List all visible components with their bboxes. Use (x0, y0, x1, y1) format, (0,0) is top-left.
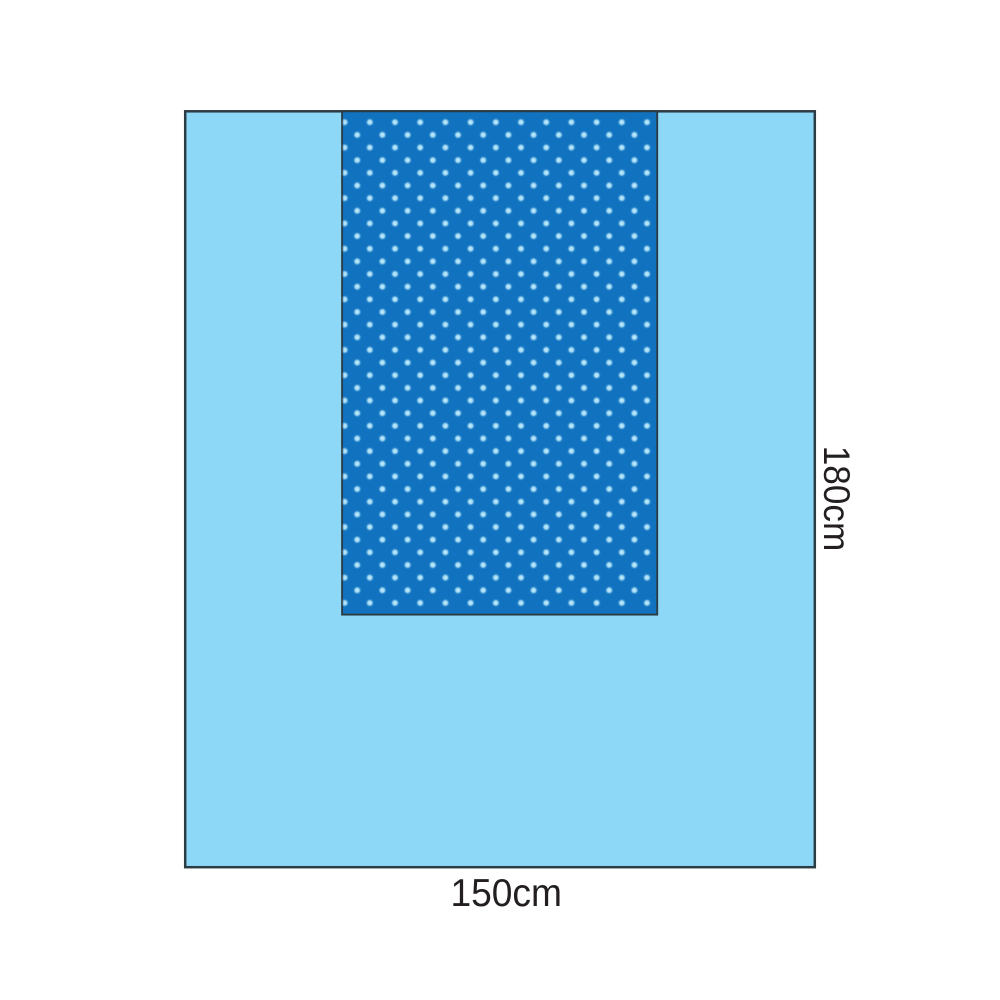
svg-text:180cm: 180cm (816, 446, 858, 552)
svg-text:150cm: 150cm (450, 872, 562, 915)
